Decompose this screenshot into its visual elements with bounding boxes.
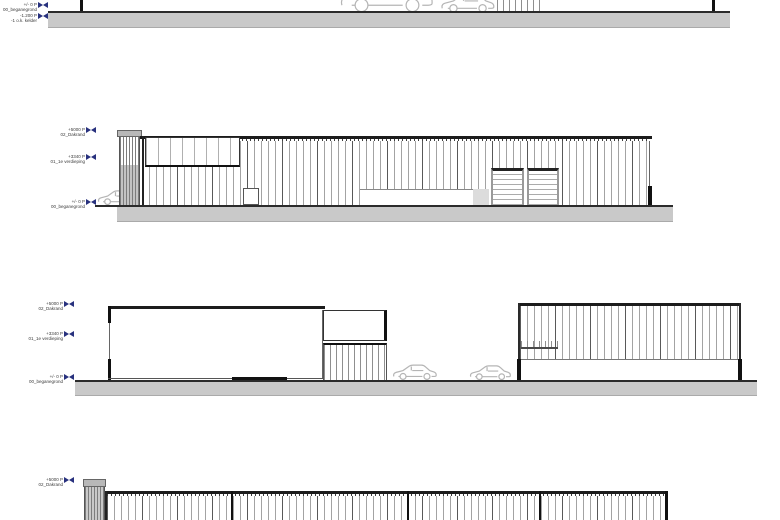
facade-divider-post (231, 491, 233, 520)
level-label: +5000 P 02_Dakrand (16, 477, 74, 488)
stair-tower-cap (83, 479, 106, 487)
level-name: 02_Dakrand (16, 482, 63, 487)
building-corner-post (665, 491, 668, 520)
drawing-canvas: +/- 0 P 00_beganegrond -1.200 P -1 o.k. … (0, 0, 780, 520)
stair-tower-body (84, 487, 105, 520)
elevation-view-4: +5000 P 02_Dakrand (0, 0, 780, 520)
facade-divider-post (407, 491, 409, 520)
facade-divider-post (539, 491, 541, 520)
facade-siding (107, 496, 666, 520)
building-corner-line (105, 491, 107, 520)
level-marker-icon (64, 477, 74, 483)
